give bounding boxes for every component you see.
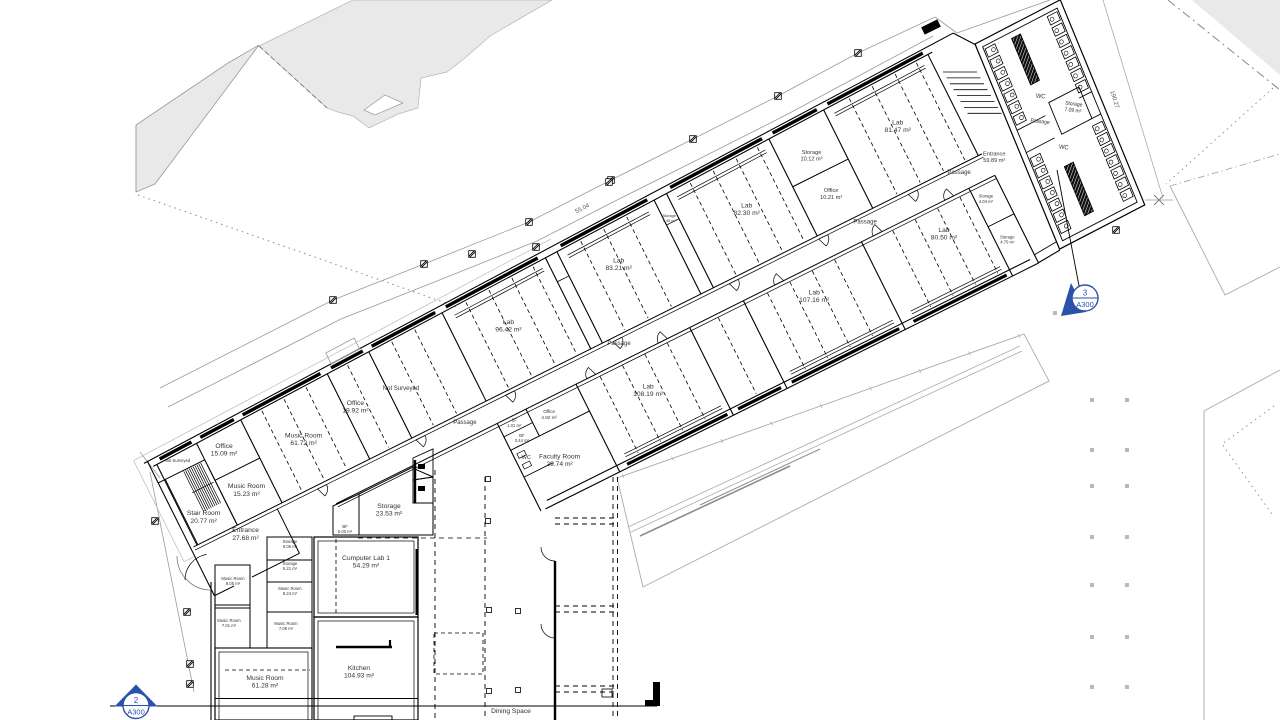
- svg-text:96.42 m²: 96.42 m²: [495, 327, 522, 334]
- svg-text:80.50 m²: 80.50 m²: [931, 235, 958, 242]
- svg-text:A300: A300: [127, 708, 145, 717]
- svg-text:5.21 m²: 5.21 m²: [283, 566, 298, 571]
- svg-text:Music Room: Music Room: [228, 483, 266, 490]
- svg-text:3: 3: [1083, 289, 1088, 298]
- svg-text:82.30 m²: 82.30 m²: [733, 210, 760, 217]
- svg-text:27.68 m²: 27.68 m²: [232, 535, 259, 542]
- svg-text:Lab: Lab: [938, 227, 949, 234]
- svg-text:61.72 m²: 61.72 m²: [290, 440, 317, 447]
- svg-text:4.45 m²: 4.45 m²: [663, 219, 677, 223]
- svg-text:61.28 m²: 61.28 m²: [252, 683, 279, 690]
- svg-text:54.29 m²: 54.29 m²: [353, 563, 380, 570]
- svg-text:8.05 m²: 8.05 m²: [226, 581, 241, 586]
- svg-text:10.12 m²: 10.12 m²: [800, 156, 822, 162]
- svg-text:8.24 m²: 8.24 m²: [283, 591, 298, 596]
- svg-text:Office: Office: [215, 443, 233, 450]
- svg-text:10.21 m²: 10.21 m²: [820, 195, 842, 201]
- svg-text:19.92 m²: 19.92 m²: [342, 407, 369, 414]
- svg-text:6.05 m²: 6.05 m²: [283, 544, 298, 549]
- svg-text:Cumputer Lab 1: Cumputer Lab 1: [342, 555, 390, 562]
- svg-text:15.09 m²: 15.09 m²: [211, 451, 238, 458]
- svg-text:4.04 m²: 4.04 m²: [979, 199, 994, 204]
- svg-text:A300: A300: [1076, 300, 1094, 309]
- svg-text:Entrance: Entrance: [232, 527, 259, 534]
- svg-text:Passage: Passage: [607, 341, 631, 347]
- svg-text:Storage: Storage: [663, 214, 676, 218]
- svg-text:23.53 m²: 23.53 m²: [376, 511, 403, 518]
- svg-text:4.82 m²: 4.82 m²: [541, 415, 557, 420]
- svg-text:Not Surveyed: Not Surveyed: [165, 458, 191, 463]
- svg-text:Storage: Storage: [377, 503, 401, 510]
- svg-text:15.23 m²: 15.23 m²: [233, 491, 260, 498]
- svg-text:81.47 m²: 81.47 m²: [884, 127, 911, 134]
- svg-text:Storage: Storage: [802, 150, 822, 156]
- svg-text:83.21 m²: 83.21 m²: [605, 265, 632, 272]
- svg-text:20.77 m²: 20.77 m²: [190, 518, 217, 525]
- svg-text:7.01 m²: 7.01 m²: [222, 623, 237, 628]
- svg-text:Faculty Room: Faculty Room: [539, 453, 581, 460]
- svg-text:29.74 m²: 29.74 m²: [546, 461, 573, 468]
- svg-text:3.44 m²: 3.44 m²: [515, 438, 530, 443]
- svg-text:Entrance: Entrance: [983, 152, 1005, 158]
- svg-text:Music Room: Music Room: [246, 675, 284, 682]
- svg-text:104.93 m²: 104.93 m²: [344, 673, 375, 680]
- svg-text:Office: Office: [543, 409, 555, 414]
- svg-text:1.01 m²: 1.01 m²: [507, 423, 522, 428]
- svg-text:Lab: Lab: [892, 119, 903, 126]
- svg-text:Lab: Lab: [809, 289, 820, 296]
- svg-text:Passage: Passage: [947, 170, 971, 176]
- svg-text:Office: Office: [824, 188, 839, 194]
- svg-text:WC: WC: [1058, 144, 1069, 151]
- svg-text:Lab: Lab: [741, 202, 752, 209]
- svg-text:WC: WC: [522, 455, 531, 461]
- svg-text:Lab: Lab: [503, 319, 514, 326]
- svg-text:107.16 m²: 107.16 m²: [799, 297, 830, 304]
- svg-text:WC: WC: [1035, 93, 1046, 100]
- svg-text:2: 2: [134, 696, 139, 705]
- svg-text:Lab: Lab: [613, 257, 624, 264]
- svg-text:Passage: Passage: [453, 420, 477, 426]
- svg-text:108.19 m²: 108.19 m²: [633, 391, 664, 398]
- svg-text:Lab: Lab: [643, 383, 654, 390]
- svg-text:5.00 m²: 5.00 m²: [338, 529, 353, 534]
- svg-text:7.06 m²: 7.06 m²: [279, 626, 294, 631]
- svg-text:4.70 m²: 4.70 m²: [1000, 240, 1015, 245]
- svg-text:Not Surveyed: Not Surveyed: [383, 386, 419, 392]
- svg-text:Passage: Passage: [853, 219, 877, 225]
- svg-text:59.89 m²: 59.89 m²: [983, 158, 1005, 164]
- svg-text:Kitchen: Kitchen: [348, 665, 371, 672]
- svg-text:Office: Office: [347, 400, 365, 407]
- svg-text:Dining Space: Dining Space: [491, 708, 531, 715]
- svg-text:Music Room: Music Room: [285, 432, 323, 439]
